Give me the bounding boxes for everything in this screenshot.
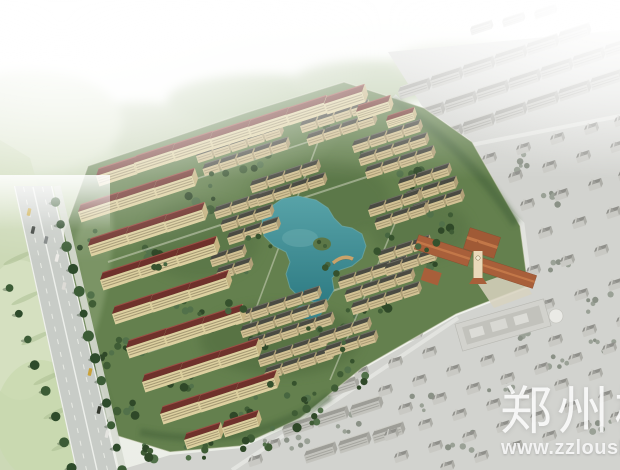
scene-svg	[0, 0, 620, 470]
aerial-rendering: 郑州楼 www.zzloushi	[0, 0, 620, 470]
atmospheric-haze	[0, 0, 620, 470]
